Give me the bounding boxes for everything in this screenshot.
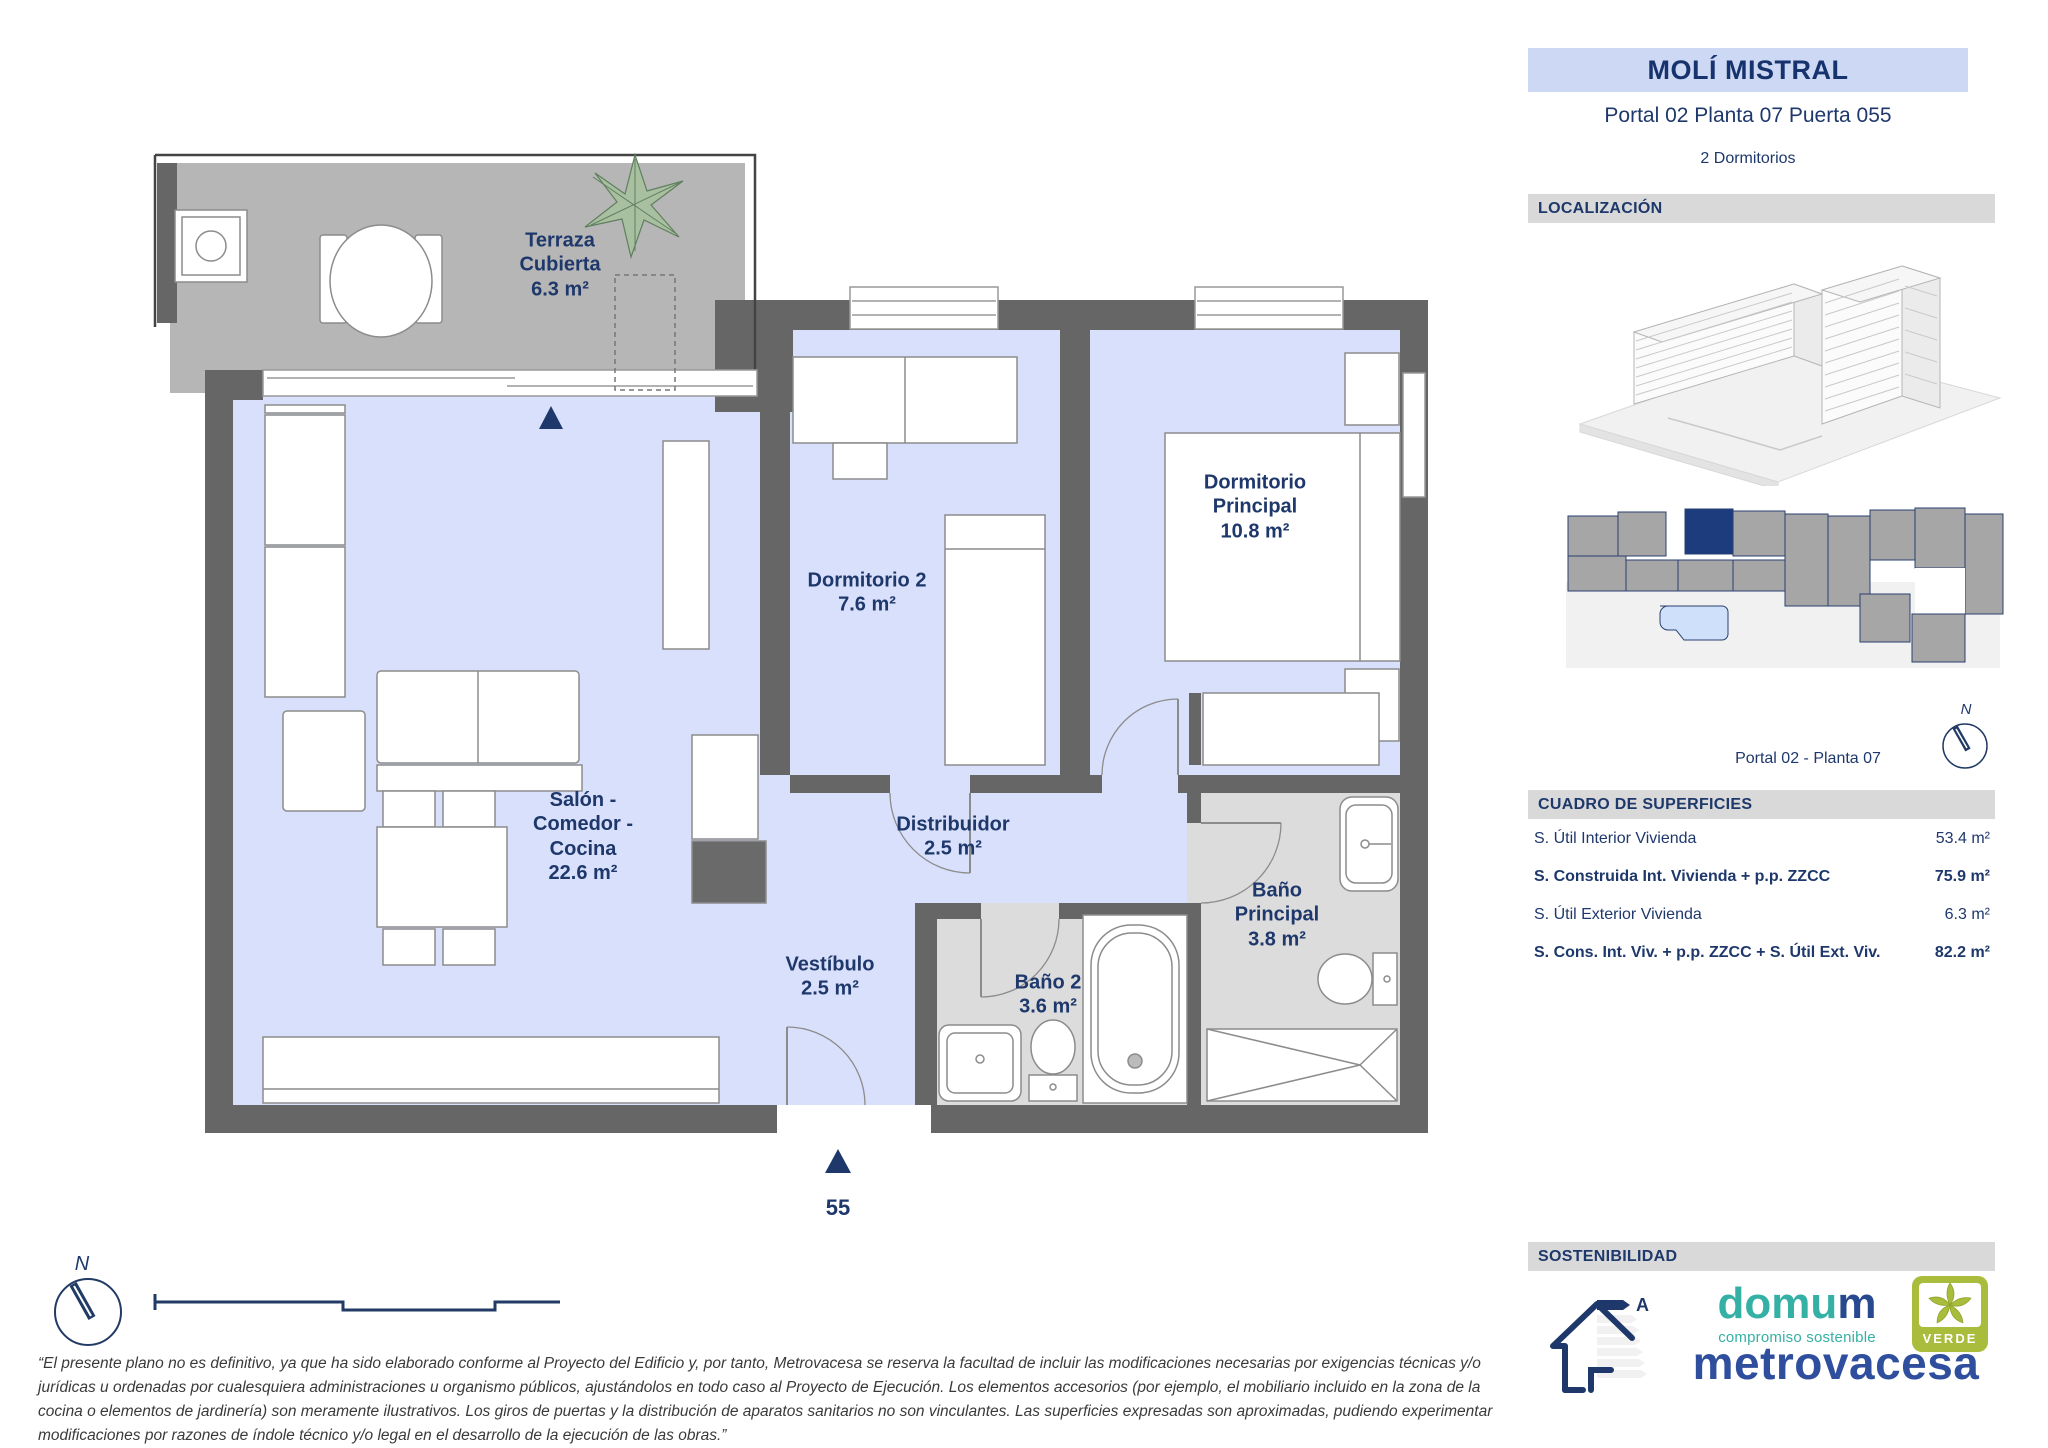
surface-value: 75.9 m² [1935, 868, 1990, 886]
surface-value: 53.4 m² [1936, 830, 1990, 848]
main-bedroom-window [1195, 287, 1343, 329]
laundry-unit [175, 210, 247, 282]
building-illustration [1568, 228, 2008, 486]
toilet [1031, 1020, 1075, 1074]
dining-chair [443, 929, 495, 965]
surface-label: S. Útil Interior Vivienda [1534, 830, 1696, 848]
table-row: S. Útil Exterior Vivienda 6.3 m² [1534, 906, 1990, 924]
kitchen-counter [265, 405, 345, 413]
legal-disclaimer: “El presente plano no es definitivo, ya … [38, 1352, 1516, 1448]
room-label-dormitorio2: Dormitorio 2 7.6 m² [787, 569, 947, 618]
section-localizacion: LOCALIZACIÓN [1528, 194, 1995, 223]
dining-table [377, 827, 507, 927]
sofa-chaise [377, 765, 582, 791]
table-row: S. Cons. Int. Viv. + p.p. ZZCC + S. Útil… [1534, 944, 1990, 962]
key-plan [1560, 494, 2012, 686]
surface-label: S. Construida Int. Vivienda + p.p. ZZCC [1534, 868, 1830, 886]
side-window [1403, 373, 1425, 497]
bedroom2-window [850, 287, 998, 329]
room-label-vestibulo: Vestíbulo 2.5 m² [765, 953, 895, 1002]
surface-value: 82.2 m² [1935, 944, 1990, 962]
section-cuadro-superficies: CUADRO DE SUPERFICIES [1528, 790, 1995, 819]
shower-tray [1207, 1029, 1397, 1101]
dining-chair [383, 929, 435, 965]
entry-marker: 55 [825, 1149, 851, 1220]
kitchen-worktop [692, 841, 766, 903]
entry-arrow-icon [825, 1149, 851, 1173]
surface-value: 6.3 m² [1945, 906, 1990, 924]
section-sostenibilidad: SOSTENIBILIDAD [1528, 1242, 1995, 1271]
surfaces-table: S. Útil Interior Vivienda 53.4 m² S. Con… [1534, 830, 1990, 982]
nightstand [1345, 353, 1399, 425]
scale-bar [155, 1286, 560, 1310]
unit-reference: Portal 02 Planta 07 Puerta 055 [1528, 104, 1968, 128]
floor-plan: 55 Terraza Cubierta 6.3 m² Dormitorio 2 … [115, 115, 1435, 1265]
energy-rating-letter: A [1636, 1295, 1649, 1315]
surface-label: S. Útil Exterior Vivienda [1534, 906, 1702, 924]
project-title: MOLÍ MISTRAL [1528, 48, 1968, 92]
room-label-salon: Salón - Comedor - Cocina 22.6 m² [516, 788, 651, 886]
compass-n-label: N [1961, 701, 1972, 718]
key-plan-highlighted-unit [1685, 509, 1733, 554]
nightstand [833, 443, 887, 479]
table-row: S. Construida Int. Vivienda + p.p. ZZCC … [1534, 868, 1990, 886]
toilet-tank [1029, 1075, 1077, 1101]
kitchen-appliance [265, 415, 345, 545]
unit-number: 55 [826, 1195, 850, 1220]
room-label-dormitorio-principal: Dormitorio Principal 10.8 m² [1195, 470, 1315, 543]
floor-plan-drawing: 55 [115, 115, 1435, 1265]
key-plan-courtyard [1915, 568, 1965, 614]
metrovacesa-logo: metrovacesa [1660, 1336, 2012, 1390]
key-plan-caption: Portal 02 - Planta 07 [1658, 750, 1958, 768]
compass-n-label: N [75, 1253, 90, 1275]
double-bed [1165, 433, 1400, 661]
closet [1203, 693, 1379, 765]
dining-chair [383, 791, 435, 827]
sideboard [263, 1037, 719, 1103]
kitchen-column [663, 441, 709, 649]
toilet [1318, 954, 1372, 1004]
room-label-bano-principal: Baño Principal 3.8 m² [1222, 878, 1332, 951]
plan-compass-scale: N [40, 1248, 560, 1358]
room-label-distribuidor: Distribuidor 2.5 m² [878, 813, 1028, 862]
surface-label: S. Cons. Int. Viv. + p.p. ZZCC + S. Útil… [1534, 944, 1880, 962]
kitchen-island [692, 735, 758, 839]
toilet-tank [1373, 953, 1397, 1005]
bedroom-count: 2 Dormitorios [1528, 150, 1968, 168]
armchair [283, 711, 365, 811]
room-label-terraza: Terraza Cubierta 6.3 m² [500, 228, 620, 301]
entry-door-gap [777, 1105, 931, 1133]
table-row: S. Útil Interior Vivienda 53.4 m² [1534, 830, 1990, 848]
dining-chair [443, 791, 495, 827]
terrace-sliding-door [263, 370, 757, 396]
room-label-bano2: Baño 2 3.6 m² [993, 971, 1103, 1020]
kitchen-appliance [265, 547, 345, 697]
domum-wordmark: domum [1718, 1279, 1877, 1328]
terrace-table [330, 225, 432, 337]
single-bed [945, 515, 1045, 765]
